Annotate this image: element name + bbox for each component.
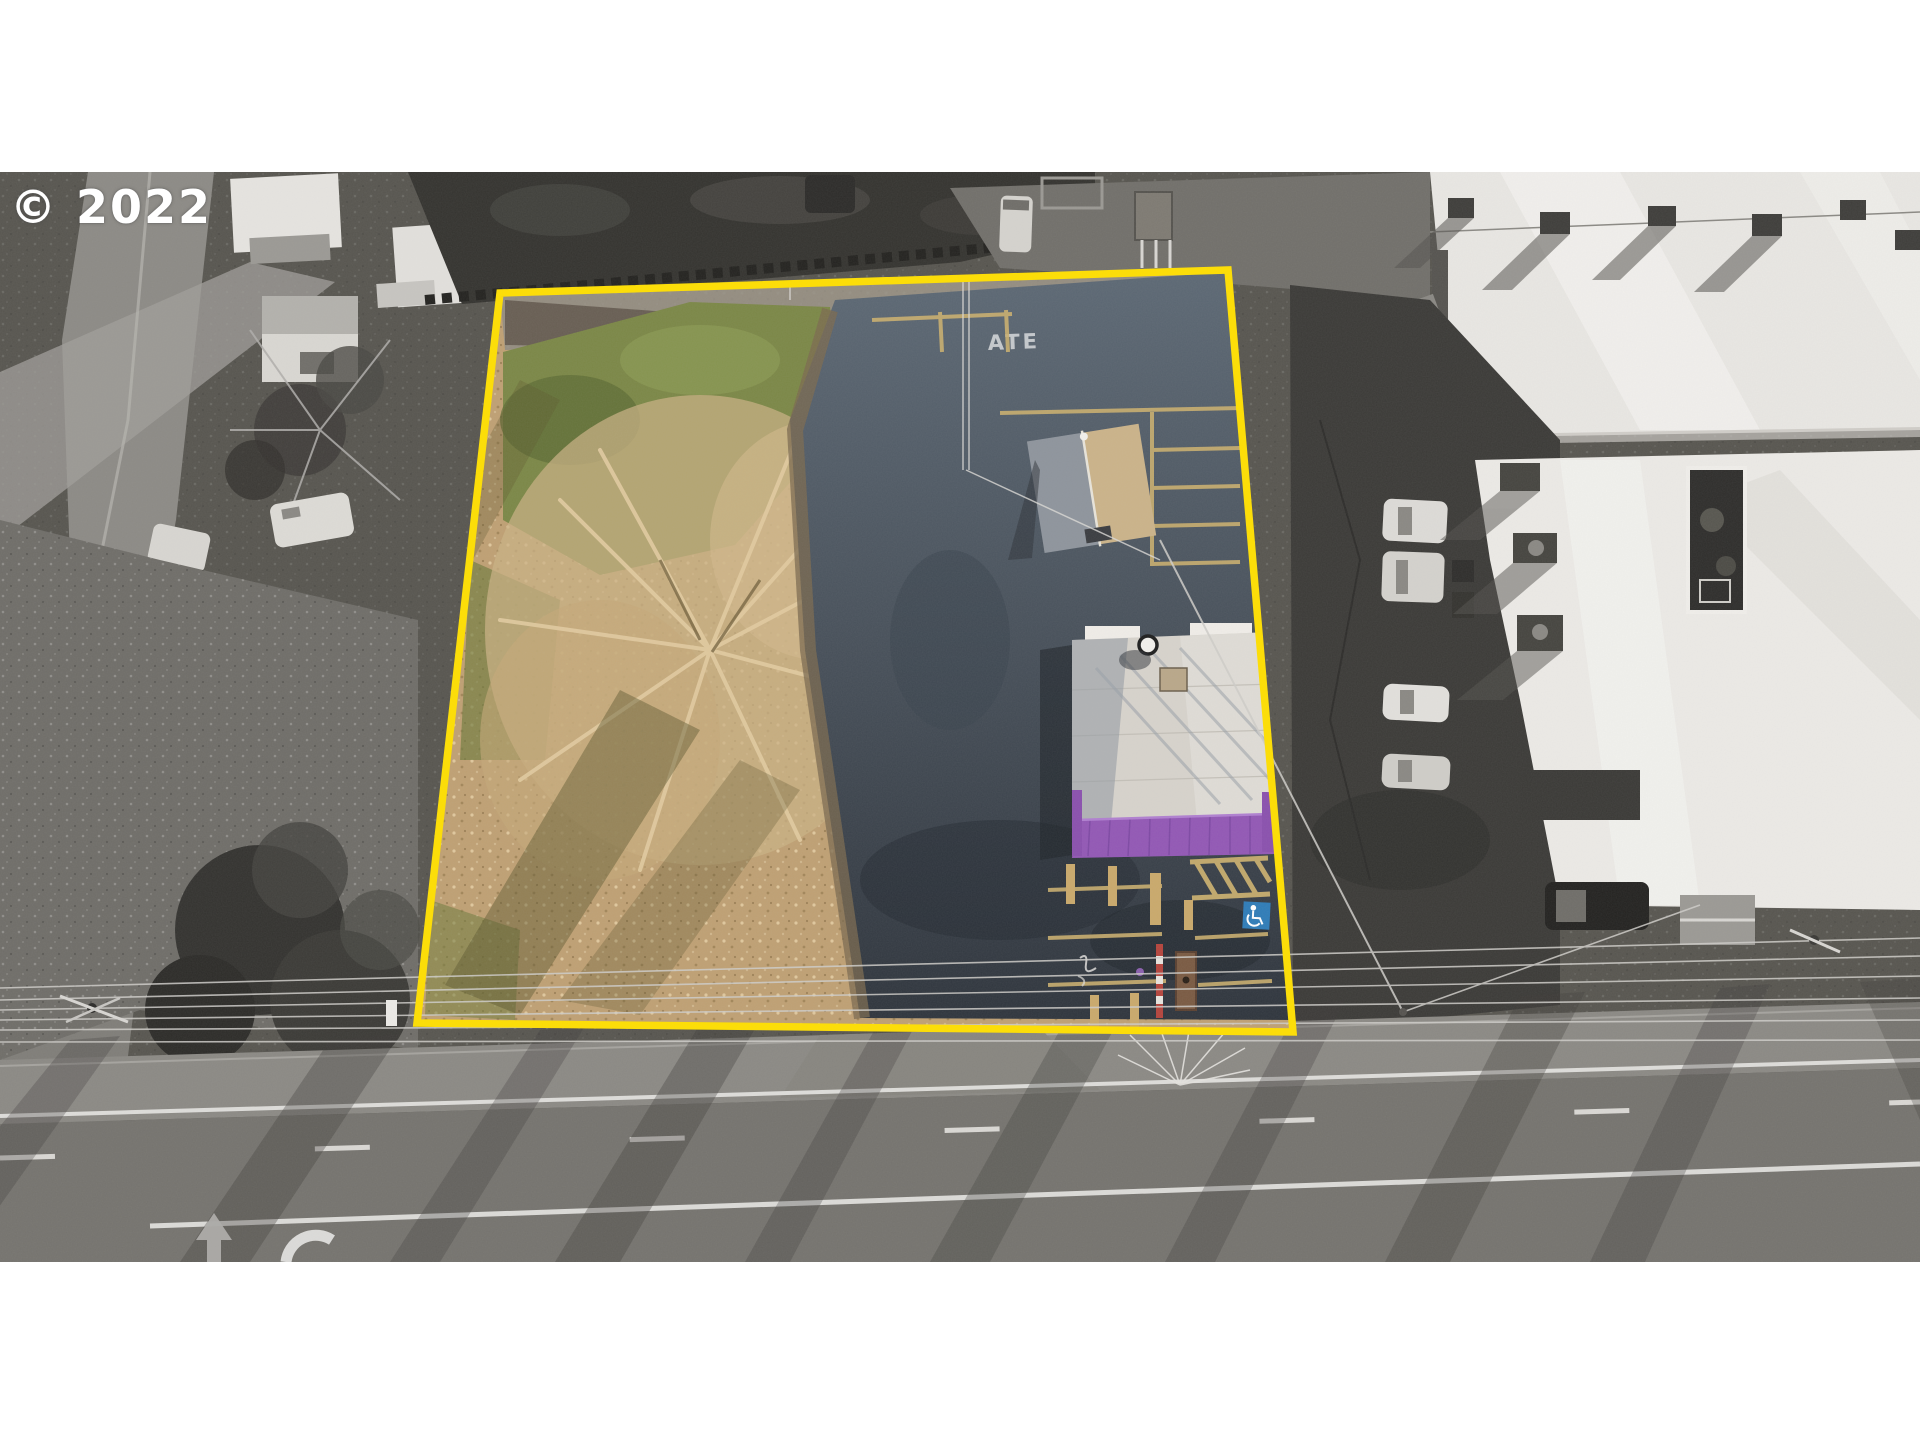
copyright-watermark: © 2022 <box>10 180 212 234</box>
photo-area: ATE <box>0 172 1920 1262</box>
photo-grain <box>0 172 1920 1262</box>
letterbox-bottom <box>0 1262 1920 1440</box>
letterbox-top <box>0 0 1920 172</box>
aerial-listing-photo: ATE <box>0 0 1920 1440</box>
